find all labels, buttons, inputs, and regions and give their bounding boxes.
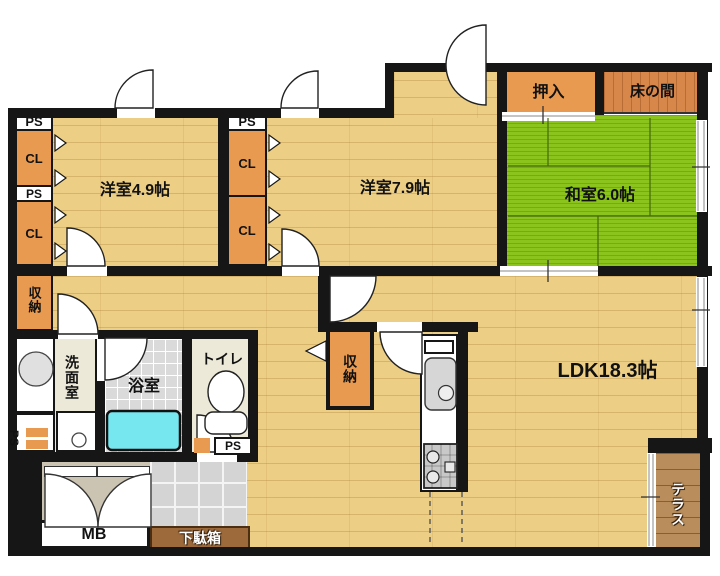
label-terrace: テラス	[667, 462, 689, 546]
storage-label: 収納	[25, 286, 44, 314]
wall-segment	[182, 339, 192, 452]
window	[696, 120, 707, 212]
entrance-tile-floor	[150, 458, 247, 528]
washer-space	[56, 411, 100, 452]
shoe-cabinet: 下駄箱	[150, 526, 250, 549]
pipe-duct	[26, 428, 48, 437]
pipe-space-box-4: PS	[214, 437, 252, 455]
vanity-counter	[15, 333, 55, 413]
closet-label: CL	[25, 226, 42, 241]
closet-label: CL	[238, 223, 255, 238]
wall-segment	[385, 63, 712, 72]
label-oshiire: 押入	[502, 80, 595, 100]
closet-label: CL	[25, 151, 42, 166]
closet-box-2: CL	[15, 200, 53, 266]
kitchen-hood	[424, 340, 454, 354]
storage-box-left: 収納	[15, 269, 53, 331]
sliding-door	[500, 266, 598, 276]
door-opening	[117, 108, 155, 118]
label-bathroom: 浴室	[112, 374, 176, 394]
room-label-western-small: 洋室4.9帖	[50, 177, 220, 199]
wall-segment	[8, 266, 712, 276]
wall-segment	[318, 266, 330, 328]
door-opening	[448, 63, 486, 72]
closet-box-1: CL	[15, 129, 53, 187]
closet-box-4: CL	[227, 195, 267, 266]
label-tokonoma: 床の間	[602, 80, 703, 100]
meter-box: MB	[38, 520, 150, 549]
wall-segment	[8, 330, 258, 339]
kitchen-counter	[420, 334, 458, 492]
room-label-japanese: 和室6.0帖	[515, 182, 685, 204]
meter-box-label: MB	[82, 526, 107, 544]
door-opening	[377, 322, 422, 332]
door-opening	[58, 330, 98, 339]
door-arc	[281, 71, 318, 108]
label-washroom: 洗面室	[61, 340, 83, 414]
tokonoma-edge-line	[604, 112, 703, 114]
door-opening	[67, 266, 107, 276]
pipe-duct	[194, 438, 210, 453]
room-label-ldk: LDK18.3帖	[520, 355, 695, 381]
pipe-space-label-vertical: PS	[4, 418, 24, 458]
closet-box-3: CL	[227, 129, 267, 197]
pipe-space-label: PS	[26, 187, 42, 201]
label-toilet: トイレ	[194, 349, 250, 369]
pipe-duct	[26, 440, 48, 449]
entrance-door-leaf	[97, 466, 150, 477]
wall-segment	[8, 547, 710, 556]
closet-label: CL	[238, 156, 255, 171]
door-opening	[281, 108, 319, 118]
storage-label: 収納	[340, 354, 360, 384]
wall-segment	[458, 322, 468, 492]
storage-box-hall: 収納	[326, 328, 374, 410]
room-label-western-large: 洋室7.9帖	[310, 175, 480, 197]
terrace-sliding-window	[647, 453, 656, 547]
window	[696, 277, 707, 367]
door-arc	[115, 70, 153, 108]
door-opening	[97, 339, 105, 381]
floorplan: PS CL PS CL 収納 PS CL CL 収納 MB 下駄箱	[0, 0, 720, 576]
entrance-door-leaf	[44, 466, 97, 477]
door-opening	[282, 266, 319, 276]
pipe-space-label: PS	[225, 439, 241, 453]
wall-segment	[700, 438, 710, 556]
shoe-cabinet-label: 下駄箱	[179, 528, 221, 548]
wall-segment	[8, 108, 394, 118]
sliding-door	[502, 112, 595, 121]
wall-segment	[8, 452, 42, 556]
